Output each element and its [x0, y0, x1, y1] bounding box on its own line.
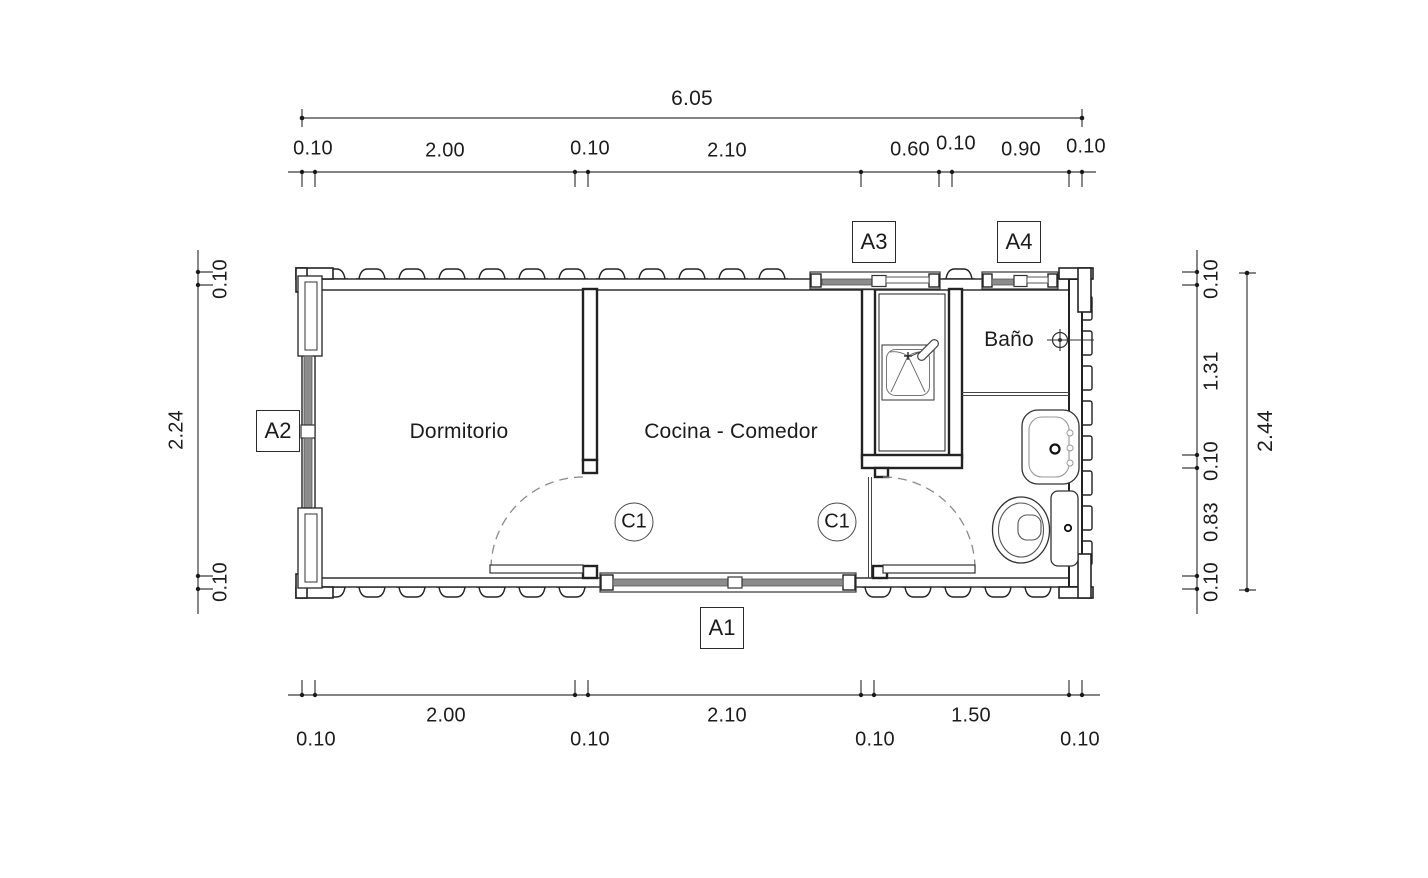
dim-bottom-2: 0.10: [570, 729, 610, 752]
dim-bottom-3: 2.10: [707, 705, 747, 728]
dim-bottom-0: 0.10: [296, 729, 336, 752]
dim-top-3: 2.10: [707, 140, 747, 163]
dim-bottom-4: 0.10: [855, 729, 895, 752]
window-a4: [982, 272, 1058, 289]
window-a2: [298, 276, 322, 588]
dim-top-2: 0.10: [570, 138, 610, 161]
dim-left-1: 2.24: [166, 410, 189, 450]
dim-bottom-6: 0.10: [1060, 729, 1100, 752]
dim-left-0: 0.10: [210, 259, 233, 299]
door-tag-c1-bath: C1: [818, 503, 857, 542]
bottom-dimension-chain: [288, 680, 1100, 697]
dim-top-6: 0.90: [1001, 139, 1041, 162]
top-total-dimension: [300, 109, 1085, 127]
shower-fixture: [882, 338, 940, 400]
dim-bottom-5: 1.50: [951, 705, 991, 728]
right-dimension-chain: [1182, 250, 1199, 614]
bathroom-divider: [962, 393, 1069, 396]
bathroom-door: [883, 477, 975, 573]
bath-door-threshold: [869, 477, 872, 578]
floor-plan-canvas: 6.05 0.10 2.00 0.10 2.10 0.60 0.10 0.90 …: [0, 0, 1428, 878]
opening-tag-a3: A3: [852, 221, 896, 263]
dim-right-3: 0.83: [1201, 502, 1224, 542]
dim-top-0: 0.10: [293, 138, 333, 161]
toilet-fixture: [993, 491, 1079, 566]
dim-top-1: 2.00: [425, 140, 465, 163]
left-dimension-chain: [196, 250, 213, 614]
dim-right-0: 0.10: [1201, 259, 1224, 299]
opening-tag-a2: A2: [256, 410, 300, 452]
dim-left-2: 0.10: [210, 562, 233, 602]
sink-fixture: [1022, 410, 1079, 484]
bedroom-door: [490, 477, 583, 573]
dim-top-7: 0.10: [1066, 136, 1106, 159]
room-label-dormitorio: Dormitorio: [410, 420, 509, 444]
dim-top-5: 0.10: [936, 133, 976, 156]
dim-right-1: 1.31: [1201, 351, 1224, 391]
room-label-bano: Baño: [984, 328, 1034, 352]
opening-tag-a4: A4: [997, 221, 1041, 263]
dim-right-total: 2.44: [1254, 410, 1278, 452]
dim-right-2: 0.10: [1201, 441, 1224, 481]
window-a3: [810, 272, 940, 289]
dim-top-total: 6.05: [671, 87, 713, 111]
dim-right-4: 0.10: [1201, 562, 1224, 602]
top-dimension-chain: [288, 170, 1096, 187]
room-label-cocina-comedor: Cocina - Comedor: [644, 420, 818, 444]
dim-bottom-1: 2.00: [426, 705, 466, 728]
window-a1: [600, 573, 856, 592]
opening-tag-a1: A1: [700, 607, 744, 649]
dim-top-4: 0.60: [890, 139, 930, 162]
door-tag-c1-kitchen: C1: [615, 503, 654, 542]
